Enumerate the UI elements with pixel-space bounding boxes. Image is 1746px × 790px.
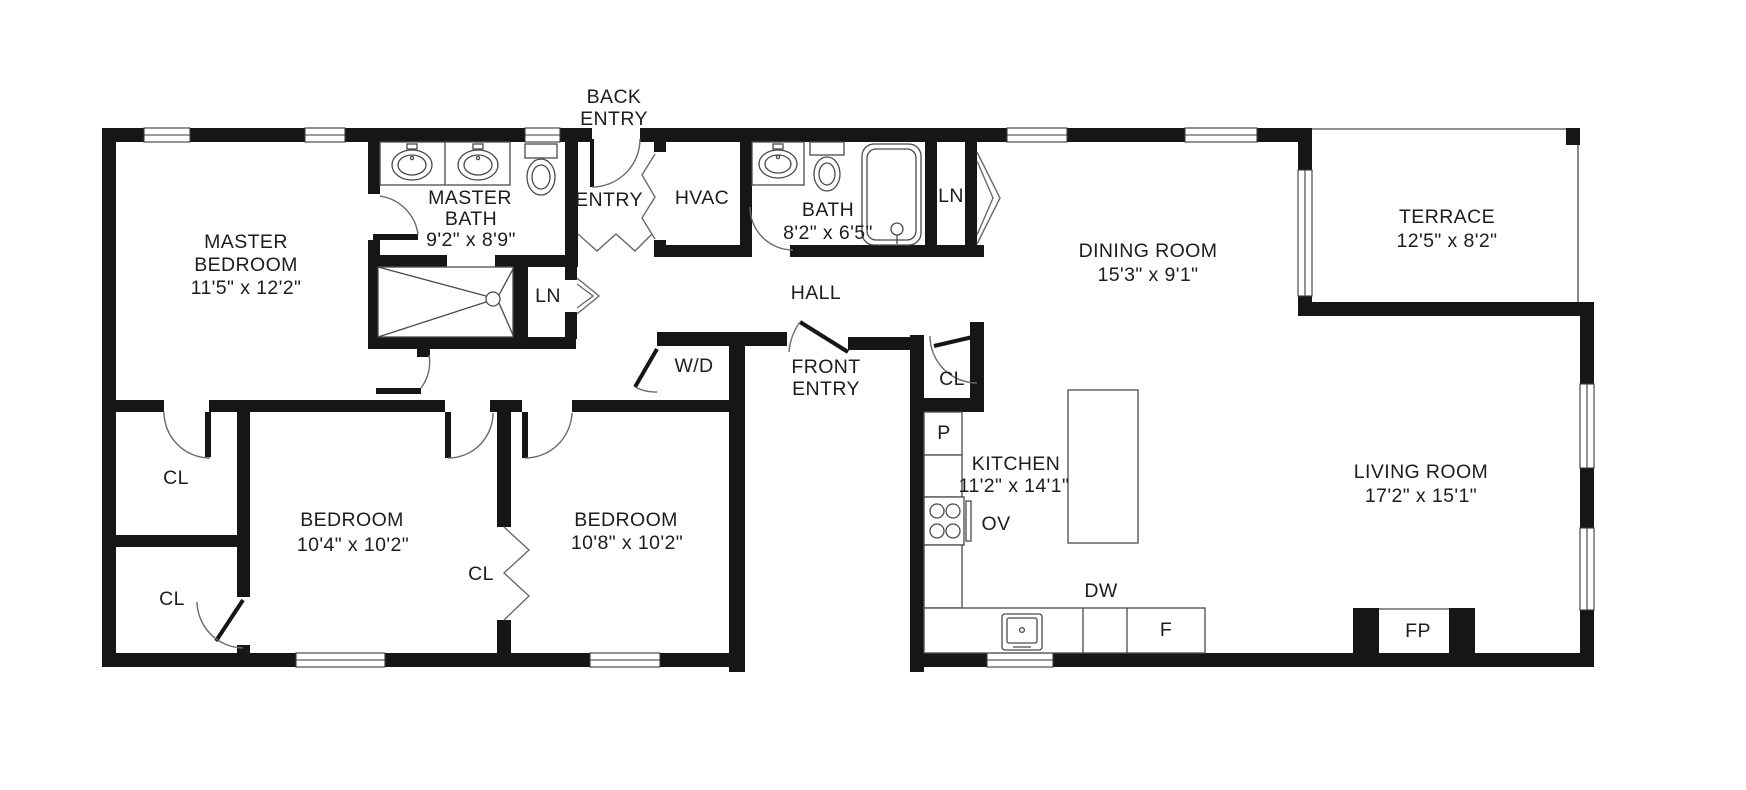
master-bedroom-label-line1: MASTER xyxy=(204,231,288,253)
interior-walls-rect xyxy=(565,260,577,280)
dining-room-label: DINING ROOM xyxy=(1079,240,1218,262)
interior-walls-rect xyxy=(790,245,984,257)
terrace-structure-rect xyxy=(1298,302,1594,316)
exterior-walls-rect xyxy=(1067,128,1185,142)
bathtub-icon-circle xyxy=(891,223,903,235)
interior-walls-rect xyxy=(114,535,250,547)
stove-icon-circle xyxy=(930,504,944,518)
master-bath-label-line2: BATH xyxy=(445,208,497,230)
interior-walls-rect xyxy=(209,400,445,412)
master-bath-dims: 9'2" x 8'9" xyxy=(426,229,516,251)
entry-label: ENTRY xyxy=(575,189,643,211)
exterior-walls-rect xyxy=(385,653,590,667)
interior-walls-rect xyxy=(368,337,576,349)
window xyxy=(590,653,660,667)
window xyxy=(987,653,1053,667)
bedroom1-door-rect xyxy=(445,412,451,458)
bedroom1-closet-label: CL xyxy=(159,588,185,610)
window xyxy=(305,128,345,142)
interior-walls-rect xyxy=(368,255,447,267)
master-bedroom-door-rect xyxy=(376,388,421,394)
window xyxy=(1007,128,1067,142)
window xyxy=(1580,384,1594,468)
hvac-bifold-door xyxy=(642,154,655,239)
master-bedroom-door xyxy=(376,355,430,394)
stove-icon-circle xyxy=(946,524,960,538)
bedroom2-door xyxy=(522,412,572,458)
kitchen-label: KITCHEN xyxy=(972,453,1060,475)
window xyxy=(525,128,560,142)
back-entry-door xyxy=(592,139,640,187)
toilet-icon xyxy=(525,144,557,195)
interior-walls-rect xyxy=(657,332,787,346)
living-room-label: LIVING ROOM xyxy=(1354,461,1488,483)
bath-vanity-ellipse xyxy=(765,155,791,173)
stove-icon-rect xyxy=(924,497,964,545)
interior-walls-rect xyxy=(924,398,984,412)
exterior-walls-rect xyxy=(1580,610,1594,667)
toilet-icon-rect xyxy=(810,142,844,155)
interior-walls-rect xyxy=(116,400,164,412)
bedroom1-dims: 10'4" x 10'2" xyxy=(297,534,409,556)
master-bath-door-rect xyxy=(373,234,418,240)
exterior-walls-rect xyxy=(640,128,1007,142)
window xyxy=(296,653,385,667)
kitchen-island xyxy=(1068,390,1138,543)
interior-walls-rect xyxy=(497,620,511,655)
bedroom2-closet-label: CL xyxy=(468,563,494,585)
corridor-closet-door xyxy=(164,412,211,458)
exterior-walls-rect xyxy=(102,653,296,667)
interior-walls-rect xyxy=(654,245,745,257)
stove-icon-circle xyxy=(946,504,960,518)
bedroom2-label: BEDROOM xyxy=(574,509,678,531)
kitchen-cabinet xyxy=(924,455,962,497)
toilet-icon xyxy=(810,142,844,191)
sink-icon-rect xyxy=(407,144,417,149)
fireplace-label: FP xyxy=(1405,620,1431,642)
bedroom1-label: BEDROOM xyxy=(300,509,404,531)
corridor-closet-door-path xyxy=(164,412,210,458)
linen-lower-bifold-door xyxy=(577,278,599,314)
front-door-path xyxy=(789,322,800,352)
interior-walls-rect xyxy=(572,400,744,412)
terrace-dims: 12'5" x 8'2" xyxy=(1397,230,1498,252)
bath-dims: 8'2" x 6'5" xyxy=(783,222,873,244)
exterior-walls-rect xyxy=(1580,468,1594,528)
kitchen-sink-icon xyxy=(1002,614,1042,650)
washer-dryer-door-line xyxy=(635,349,657,387)
bedroom1-door-path xyxy=(448,413,493,458)
fridge-label: F xyxy=(1160,619,1172,641)
back-entry-door-path xyxy=(592,139,640,187)
interior-walls-rect xyxy=(495,255,573,267)
bedroom1-closet-door-line xyxy=(216,600,243,641)
washer-dryer-label: W/D xyxy=(674,355,713,377)
exterior-walls-rect xyxy=(102,128,116,667)
interior-walls-rect xyxy=(910,335,924,672)
back-entry-label-line2: ENTRY xyxy=(580,108,648,130)
floor-plan-page: BACK ENTRY ENTRY HVAC BATH 8'2" x 6'5" L… xyxy=(0,0,1746,790)
sink-icon-ellipse xyxy=(398,155,426,175)
interior-walls-rect xyxy=(237,645,250,655)
bedroom1-door xyxy=(445,412,493,458)
master-bath-door-path xyxy=(380,196,418,234)
corridor-closet-label: CL xyxy=(163,467,189,489)
interior-walls-rect xyxy=(729,332,745,672)
hall-closet-label: CL xyxy=(939,368,965,390)
exterior-walls-rect xyxy=(190,128,305,142)
interior-walls-rect xyxy=(490,400,522,412)
terrace-structure-rect xyxy=(1298,128,1312,170)
corridor-closet-door-rect xyxy=(205,412,211,457)
window xyxy=(144,128,190,142)
stove-icon-circle xyxy=(930,524,944,538)
interior-walls-rect xyxy=(497,412,511,527)
bath-label: BATH xyxy=(802,199,854,221)
interior-walls-rect xyxy=(925,142,937,245)
oven-label: OV xyxy=(982,513,1011,535)
master-bath-vanity xyxy=(380,142,510,185)
interior-walls-rect xyxy=(965,142,977,245)
master-bedroom-door-path xyxy=(421,355,430,388)
dishwasher-label: DW xyxy=(1084,580,1117,602)
back-entry-label-line1: BACK xyxy=(587,86,642,108)
master-bath-label-line1: MASTER xyxy=(428,187,512,209)
sink-icon-rect xyxy=(473,144,483,149)
fireplace-icon-rect xyxy=(1353,608,1379,653)
living-room-dims: 17'2" x 15'1" xyxy=(1365,485,1477,507)
linen-top-bifold-door-polyline xyxy=(977,161,993,235)
kitchen-dims: 11'2" x 14'1" xyxy=(959,475,1070,497)
linen-top-bifold-door xyxy=(977,152,1000,244)
linen-lower-bifold-door-polyline xyxy=(577,278,599,314)
exterior-walls-rect xyxy=(1580,316,1594,384)
bedroom2-dims: 10'8" x 10'2" xyxy=(571,532,683,554)
front-door xyxy=(789,322,848,352)
terrace-structure-rect xyxy=(1566,128,1580,145)
linen-lower-label: LN xyxy=(535,285,561,307)
master-bedroom-dims: 11'5" x 12'2" xyxy=(191,277,302,299)
toilet-icon-ellipse xyxy=(819,163,835,185)
kitchen-cabinet xyxy=(924,545,962,608)
interior-walls-rect xyxy=(654,142,666,152)
terrace-label: TERRACE xyxy=(1399,206,1495,228)
bedroom2-closet-bifold xyxy=(504,527,529,620)
interior-walls-rect xyxy=(368,267,378,341)
bath-vanity-rect xyxy=(773,144,783,149)
sink-icon-ellipse xyxy=(464,155,492,175)
interior-walls-rect xyxy=(368,142,380,194)
washer-dryer-door-path xyxy=(635,387,657,392)
entry-bifold-door xyxy=(578,234,652,251)
interior-walls-rect xyxy=(513,260,528,337)
linen-lower-bifold-door-polyline xyxy=(577,284,593,308)
kitchen-sink-icon-rect xyxy=(1007,618,1037,643)
exterior-walls-rect xyxy=(345,128,525,142)
bath-vanity xyxy=(752,142,804,185)
bedroom2-door-rect xyxy=(522,412,528,458)
interior-walls-rect xyxy=(237,412,250,597)
exterior-walls-rect xyxy=(102,128,144,142)
window xyxy=(1580,528,1594,610)
stove-icon-rect xyxy=(966,501,971,541)
terrace-structure-rect xyxy=(1298,296,1312,316)
interior-walls-rect xyxy=(417,337,430,357)
interior-walls-rect xyxy=(848,337,910,350)
front-entry-label-line2: ENTRY xyxy=(792,378,860,400)
front-entry-label-line1: FRONT xyxy=(791,356,860,378)
master-bedroom-label-line2: BEDROOM xyxy=(194,254,298,276)
stove-icon xyxy=(924,497,971,545)
floor-plan-svg: BACK ENTRY ENTRY HVAC BATH 8'2" x 6'5" L… xyxy=(0,0,1746,790)
pantry-label: P xyxy=(937,422,950,444)
washer-dryer-door xyxy=(635,349,657,392)
dining-room-dims: 15'3" x 9'1" xyxy=(1098,264,1199,286)
window xyxy=(1185,128,1257,142)
bedroom1-closet-door xyxy=(197,600,243,648)
master-bath-door xyxy=(373,196,418,240)
linen-top-bifold-door-polyline xyxy=(977,152,1000,244)
interior-walls-rect xyxy=(565,312,577,339)
toilet-icon-ellipse xyxy=(532,165,550,189)
shower-icon-circle xyxy=(486,292,500,306)
front-door-line xyxy=(800,322,848,352)
window xyxy=(1298,170,1312,296)
shower-icon xyxy=(378,267,513,337)
linen-top-label: LN xyxy=(938,185,964,207)
hall-label: HALL xyxy=(791,282,841,304)
fireplace-icon-rect xyxy=(1449,608,1475,653)
hvac-label: HVAC xyxy=(675,187,729,209)
bedroom2-door-path xyxy=(525,413,572,458)
toilet-icon-rect xyxy=(525,144,557,158)
exterior-walls-rect xyxy=(1053,653,1594,667)
